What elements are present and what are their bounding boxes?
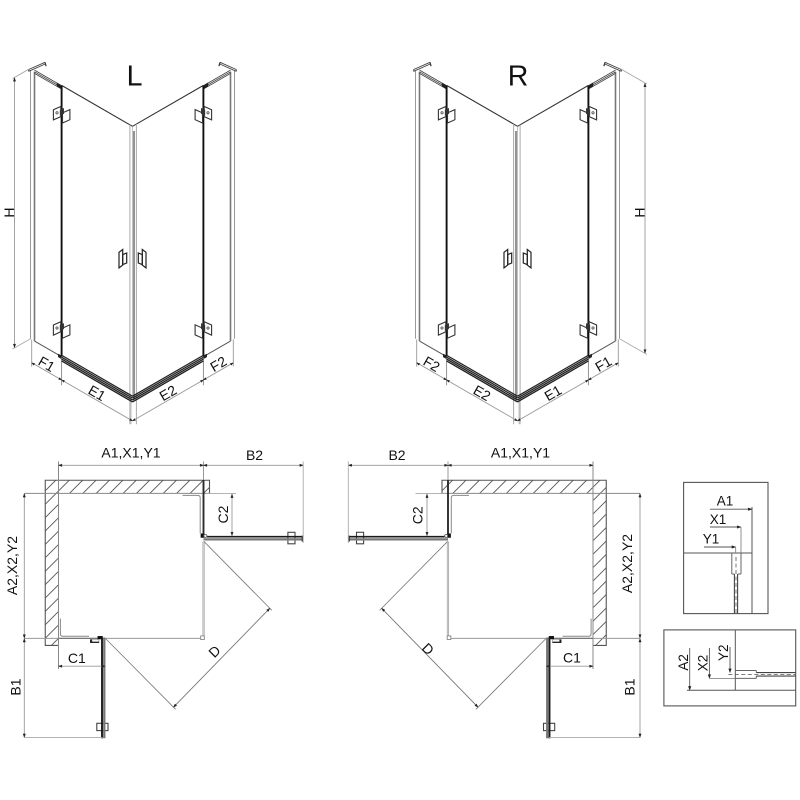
svg-text:A1: A1 — [717, 494, 734, 509]
svg-text:B1: B1 — [7, 678, 23, 695]
svg-text:B2: B2 — [246, 447, 263, 463]
svg-text:C2: C2 — [409, 506, 425, 524]
svg-text:B2: B2 — [388, 447, 405, 463]
svg-text:C1: C1 — [563, 650, 581, 666]
svg-text:A2,X2,Y2: A2,X2,Y2 — [4, 536, 20, 595]
svg-text:X2: X2 — [696, 655, 711, 672]
svg-text:Y2: Y2 — [716, 645, 731, 662]
svg-text:L: L — [127, 60, 143, 92]
svg-text:Y1: Y1 — [703, 532, 720, 547]
svg-text:C2: C2 — [215, 505, 231, 523]
svg-text:X1: X1 — [710, 512, 727, 527]
svg-text:A1,X1,Y1: A1,X1,Y1 — [491, 445, 550, 461]
svg-text:R: R — [508, 60, 529, 92]
svg-text:A2,X2,Y2: A2,X2,Y2 — [619, 534, 635, 593]
svg-text:B1: B1 — [621, 678, 637, 695]
svg-text:H: H — [631, 207, 647, 217]
svg-text:C1: C1 — [68, 650, 86, 666]
svg-text:A1,X1,Y1: A1,X1,Y1 — [101, 445, 160, 461]
svg-text:H: H — [1, 207, 17, 217]
svg-text:A2: A2 — [676, 654, 691, 671]
